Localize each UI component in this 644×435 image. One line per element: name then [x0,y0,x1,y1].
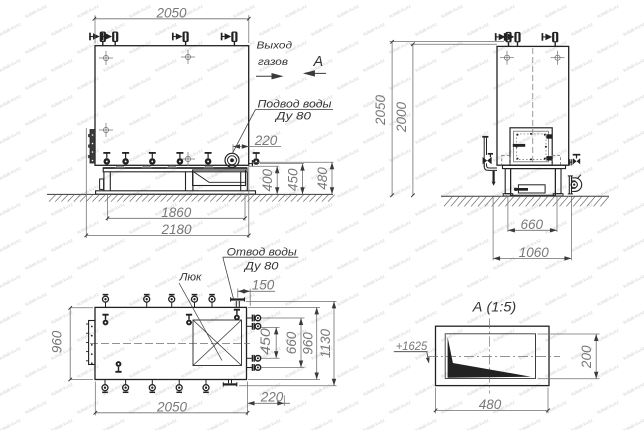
svg-text:газов: газов [258,56,289,68]
svg-text:220: 220 [260,390,284,405]
svg-text:1060: 1060 [519,245,550,260]
svg-text:Ду 80: Ду 80 [243,260,280,272]
svg-text:150: 150 [252,277,275,292]
svg-text:2180: 2180 [160,222,192,237]
svg-text:1860: 1860 [161,205,192,220]
svg-text:960: 960 [50,330,65,353]
svg-text:200: 200 [579,345,594,369]
svg-text:2050: 2050 [373,94,388,126]
svg-text:660: 660 [284,331,299,354]
svg-text:2050: 2050 [155,6,187,21]
svg-text:220: 220 [254,133,278,148]
svg-text:Ду 80: Ду 80 [274,111,313,123]
svg-text:450: 450 [285,168,300,191]
svg-text:480: 480 [315,167,330,190]
svg-text:Люк: Люк [178,272,202,284]
svg-text:2000: 2000 [394,101,409,133]
svg-text:2050: 2050 [156,399,188,414]
svg-text:1130: 1130 [318,328,333,358]
svg-text:А: А [313,54,324,70]
svg-text:450: 450 [258,328,273,355]
svg-text:+1625: +1625 [396,341,428,353]
svg-text:А (1:5): А (1:5) [472,299,517,315]
svg-text:Выход: Выход [257,40,293,52]
svg-text:660: 660 [521,217,544,232]
svg-text:400: 400 [260,168,275,191]
svg-text:480: 480 [479,397,502,412]
svg-text:Подвод воды: Подвод воды [258,99,332,111]
svg-text:960: 960 [300,332,315,355]
svg-text:Отвод воды: Отвод воды [227,246,297,258]
